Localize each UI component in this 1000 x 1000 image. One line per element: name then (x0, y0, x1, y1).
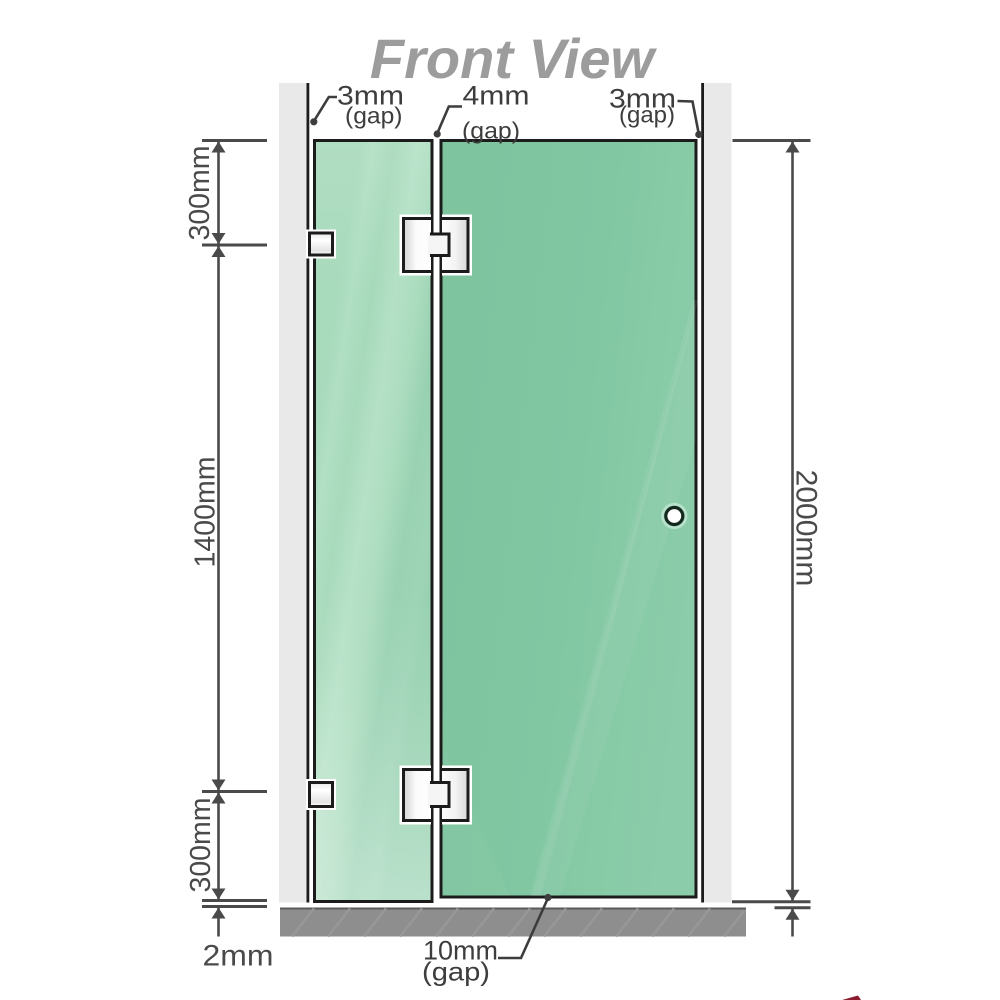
svg-text:1400mm: 1400mm (190, 457, 222, 568)
svg-text:(gap): (gap) (422, 957, 490, 987)
svg-text:(gap): (gap) (619, 102, 675, 128)
svg-text:300mm: 300mm (184, 145, 216, 240)
svg-text:300mm: 300mm (185, 797, 217, 892)
svg-text:(gap): (gap) (345, 103, 403, 129)
svg-text:2000mm: 2000mm (790, 470, 823, 587)
svg-text:2mm: 2mm (203, 940, 274, 973)
svg-text:(gap): (gap) (462, 118, 520, 144)
svg-text:4mm: 4mm (463, 81, 530, 111)
